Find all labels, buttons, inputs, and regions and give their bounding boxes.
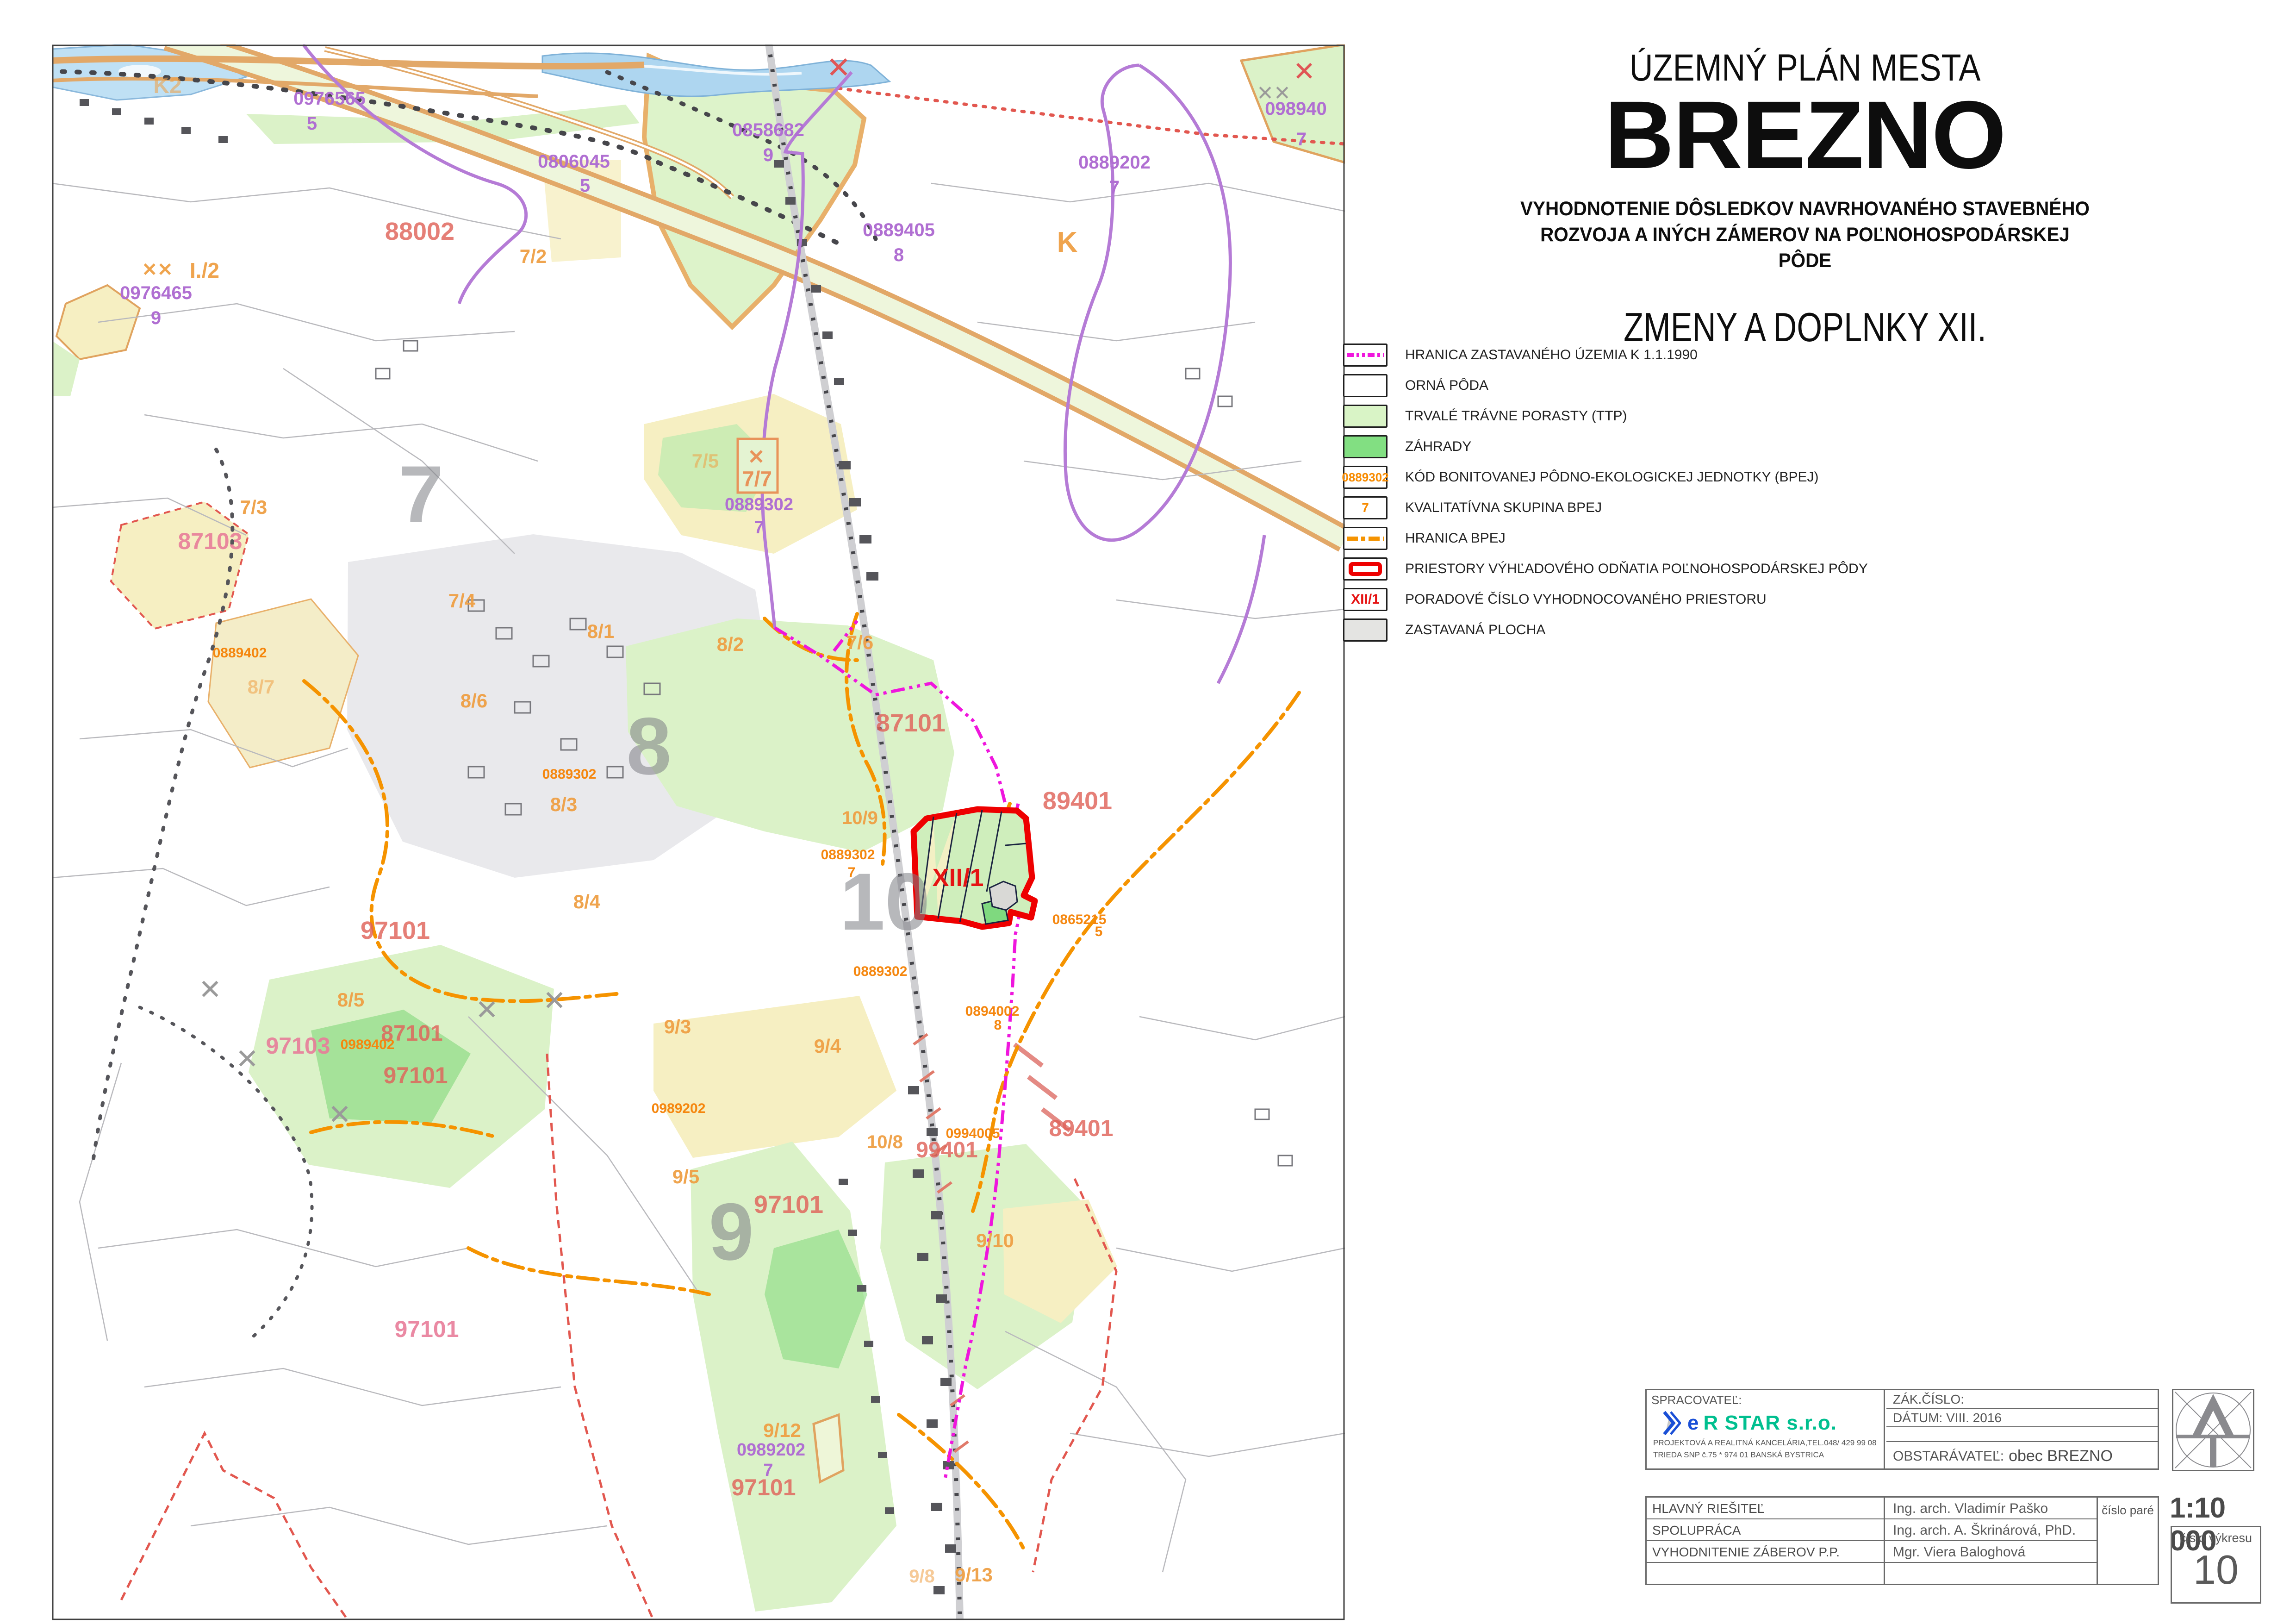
map-label-7: 7: [1109, 177, 1120, 198]
date-value: VIII. 2016: [1946, 1411, 2002, 1425]
map-label-97101: 97101: [731, 1474, 796, 1500]
legend-item-bpej-boundary: HRANICA BPEJ: [1343, 527, 1829, 550]
map-label-✕: ✕: [826, 51, 851, 84]
map-label-8/7: 8/7: [248, 676, 274, 698]
map-label-7: 7: [754, 518, 764, 537]
map-label-8: 8: [894, 245, 904, 265]
map-label-0976565: 0976565: [293, 88, 366, 109]
map-label-7/5: 7/5: [692, 450, 719, 472]
plan-subtitle: VYHODNOTENIE DÔSLEDKOV NAVRHOVANÉHO STAV…: [1513, 196, 2097, 274]
legend-label: PRIESTORY VÝHĽADOVÉHO ODŇATIA POĽNOHOSPO…: [1405, 561, 1868, 577]
map-label-97101: 97101: [383, 1062, 448, 1088]
legend-swatch-bpej-group: 7: [1343, 496, 1388, 519]
map-label-9: 9: [709, 1187, 753, 1277]
stamp-row-4: [1647, 1563, 2097, 1585]
map-label-7/7: 7/7: [742, 467, 772, 491]
map-label-✕: ✕: [748, 446, 765, 468]
order-number-sample: XII/1: [1351, 592, 1380, 607]
map-label-10/8: 10/8: [867, 1132, 903, 1152]
date-row: DÁTUM: VIII. 2016: [1886, 1409, 2159, 1427]
company-logo: e R STAR s.r.o.: [1662, 1411, 1879, 1435]
legend-item-grassland: TRVALÉ TRÁVNE PORASTY (TTP): [1343, 405, 1829, 428]
legend-label: PORADOVÉ ČÍSLO VYHODNOCOVANÉHO PRIESTORU: [1405, 592, 1767, 607]
map-label-7/2: 7/2: [520, 245, 547, 267]
legend-label: ZÁHRADY: [1405, 439, 1471, 455]
map-label-8/5: 8/5: [337, 989, 364, 1011]
map-label-7: 7: [1296, 129, 1307, 150]
map-label-9: 9: [763, 145, 773, 165]
drawing-number-box: číslo výkresu 10: [2171, 1526, 2261, 1604]
map-label-5: 5: [1095, 924, 1103, 939]
logo-company-name: R STAR s.r.o.: [1703, 1412, 1836, 1435]
map-label-8: 8: [994, 1018, 1002, 1033]
legend-item-arable: ORNÁ PÔDA: [1343, 374, 1829, 397]
copy-number-cell: číslo paré: [2097, 1498, 2158, 1584]
stamp-row-3: VYHODNITENIE ZÁBEROV P.P. Mgr. Viera Bal…: [1647, 1541, 2097, 1563]
map-label-97101: 97101: [361, 917, 430, 944]
orange-dashdot-line: [1347, 537, 1384, 541]
red-outline-sample: [1349, 562, 1382, 576]
map-label-9/4: 9/4: [814, 1035, 841, 1057]
map-label-I./2: I./2: [190, 258, 219, 282]
map-label-9: 9: [151, 308, 161, 328]
author-label: SPRACOVATEĽ:: [1651, 1393, 1879, 1407]
drawing-number-label: číslo výkresu: [2172, 1531, 2260, 1545]
map-label-7/6: 7/6: [846, 631, 873, 653]
legend-label: HRANICA BPEJ: [1405, 531, 1506, 546]
legend-item-bpej-group: 7 KVALITATÍVNA SKUPINA BPEJ: [1343, 496, 1829, 519]
map-label-0889302: 0889302: [821, 847, 875, 862]
map-label-0889302: 0889302: [853, 964, 908, 979]
map-label-89401: 89401: [1049, 1115, 1113, 1141]
map-label-✕: ✕: [199, 974, 222, 1005]
map-label-0989402: 0989402: [341, 1037, 395, 1052]
map-label-✕: ✕: [236, 1043, 259, 1074]
map-label-89401: 89401: [1043, 787, 1112, 815]
person-name: Mgr. Viera Baloghová: [1886, 1541, 2097, 1562]
map-label-5: 5: [307, 113, 317, 134]
map-label-97101: 97101: [394, 1316, 459, 1342]
map-canvas: K209765655080604550858682908892027088940…: [52, 44, 1345, 1620]
map-label-✕: ✕: [1293, 56, 1316, 87]
address-line2: TRIEDA SNP č.75 * 974 01 BANSKÁ BYSTRICA: [1653, 1449, 1879, 1461]
map-label-87103: 87103: [178, 528, 242, 554]
map-label-9/5: 9/5: [672, 1166, 699, 1187]
map-label-0976465: 0976465: [120, 283, 192, 303]
legend-label: TRVALÉ TRÁVNE PORASTY (TTP): [1405, 408, 1627, 424]
legend: HRANICA ZASTAVANÉHO ÚZEMIA K 1.1.1990 OR…: [1343, 344, 1829, 649]
map-label-0989202: 0989202: [652, 1101, 706, 1116]
map-label-88002: 88002: [385, 218, 454, 245]
map-label-0994005: 0994005: [946, 1126, 1000, 1141]
legend-item-order-number: XII/1 PORADOVÉ ČÍSLO VYHODNOCOVANÉHO PRI…: [1343, 588, 1829, 611]
map-label-7/3: 7/3: [240, 496, 267, 518]
legend-item-gardens: ZÁHRADY: [1343, 435, 1829, 458]
role-label: [1647, 1563, 1885, 1584]
person-name: [1886, 1563, 2097, 1584]
map-label-9/13: 9/13: [955, 1564, 993, 1586]
legend-item-bpej-code: 0889302 KÓD BONITOVANEJ PÔDNO-EKOLOGICKE…: [1343, 466, 1829, 489]
legend-swatch-gardens: [1343, 435, 1388, 458]
legend-swatch-built-up: [1343, 618, 1388, 642]
stamp-author-cell: SPRACOVATEĽ: e R STAR s.r.o. PROJEKTOVÁ …: [1647, 1390, 1885, 1468]
role-label: HLAVNÝ RIEŠITEĽ: [1647, 1498, 1885, 1518]
stamp-row-2: SPOLUPRÁCA Ing. arch. A. Škrinárová, PhD…: [1647, 1519, 2097, 1541]
legend-swatch-boundary-1990: [1343, 344, 1388, 367]
stamp-upper-table: SPRACOVATEĽ: e R STAR s.r.o. PROJEKTOVÁ …: [1645, 1389, 2159, 1470]
map-label-8/3: 8/3: [550, 793, 577, 815]
empty-row: [1886, 1427, 2159, 1442]
map-label-0889302: 0889302: [725, 495, 793, 514]
map-label-0858682: 0858682: [732, 120, 804, 140]
client-row: OBSTARÁVATEĽ:obec BREZNO: [1886, 1442, 2159, 1468]
order-number-label: ZÁK.ČÍSLO:: [1893, 1392, 1964, 1406]
plan-subtitle-line2: ROZVOJA A INÝCH ZÁMEROV NA POĽNOHOSPODÁR…: [1513, 222, 2097, 274]
stamp-order-cell: ZÁK.ČÍSLO: DÁTUM: VIII. 2016 OBSTARÁVATE…: [1886, 1390, 2159, 1468]
stamp-row-1: HLAVNÝ RIEŠITEĽ Ing. arch. Vladimír Pašk…: [1647, 1498, 2097, 1519]
address-line1: PROJEKTOVÁ A REALITNÁ KANCELÁRIA,TEL.048…: [1653, 1437, 1879, 1449]
map-label-8/1: 8/1: [587, 620, 614, 642]
map-label-✕: ✕: [328, 1099, 351, 1130]
map-label-8/4: 8/4: [573, 891, 601, 912]
map-label-7: 7: [848, 865, 856, 880]
map-label-7/4: 7/4: [448, 590, 476, 612]
legend-label: KVALITATÍVNA SKUPINA BPEJ: [1405, 500, 1602, 516]
plan-subtitle-line1: VYHODNOTENIE DÔSLEDKOV NAVRHOVANÉHO STAV…: [1513, 196, 2097, 222]
map-label-✕✕: ✕✕: [1257, 82, 1291, 105]
magenta-dash-line: [1347, 353, 1384, 357]
map-label-10/9: 10/9: [842, 808, 878, 828]
map-label-9/10: 9/10: [976, 1230, 1014, 1251]
date-label: DÁTUM:: [1893, 1411, 1942, 1425]
map-label-9/8: 9/8: [909, 1566, 935, 1587]
client-value: obec BREZNO: [2009, 1447, 2113, 1465]
bpej-group-sample: 7: [1362, 500, 1369, 515]
legend-label: ORNÁ PÔDA: [1405, 378, 1488, 394]
architect-mark: [2172, 1389, 2254, 1471]
map-label-XII/1: XII/1: [932, 864, 983, 892]
legend-item-withdrawal: PRIESTORY VÝHĽADOVÉHO ODŇATIA POĽNOHOSPO…: [1343, 557, 1829, 581]
role-label: VYHODNITENIE ZÁBEROV P.P.: [1647, 1541, 1885, 1562]
map-label-9/3: 9/3: [664, 1016, 691, 1037]
legend-label: ZASTAVANÁ PLOCHA: [1405, 622, 1545, 638]
map-label-99401: 99401: [916, 1138, 977, 1162]
map-label-9/12: 9/12: [763, 1419, 801, 1441]
title-block: ÚZEMNÝ PLÁN MESTA BREZNO VYHODNOTENIE DÔ…: [1495, 46, 2115, 351]
map-label-0894002: 0894002: [965, 1004, 1020, 1019]
map-label-7: 7: [398, 450, 443, 540]
role-label: SPOLUPRÁCA: [1647, 1519, 1885, 1540]
map-label-8/2: 8/2: [717, 633, 744, 655]
drawing-number-value: 10: [2172, 1546, 2260, 1593]
map: K209765655080604550858682908892027088940…: [52, 44, 1345, 1620]
bpej-code-sample: 0889302: [1342, 470, 1388, 485]
legend-item-boundary-1990: HRANICA ZASTAVANÉHO ÚZEMIA K 1.1.1990: [1343, 344, 1829, 367]
map-label-K2: K2: [153, 74, 181, 98]
map-label-✕✕: ✕✕: [142, 260, 173, 280]
plan-sheet: K209765655080604550858682908892027088940…: [0, 0, 2296, 1624]
map-label-✕: ✕: [543, 985, 566, 1016]
order-number-row: ZÁK.ČÍSLO:: [1886, 1390, 2159, 1409]
legend-label: KÓD BONITOVANEJ PÔDNO-EKOLOGICKEJ JEDNOT…: [1405, 469, 1819, 485]
legend-swatch-arable: [1343, 374, 1388, 397]
legend-swatch-bpej-code: 0889302: [1343, 466, 1388, 489]
map-label-0889405: 0889405: [863, 220, 935, 240]
map-label-✕: ✕: [475, 994, 498, 1025]
chevron-logo-icon: [1662, 1411, 1681, 1435]
legend-swatch-bpej-boundary: [1343, 527, 1388, 550]
map-label-8: 8: [626, 701, 671, 792]
architect-mark-icon: [2173, 1390, 2253, 1470]
stamp-lower-table: HLAVNÝ RIEŠITEĽ Ing. arch. Vladimír Pašk…: [1645, 1496, 2159, 1585]
map-label-0989202: 0989202: [737, 1440, 805, 1460]
map-label-87101: 87101: [876, 709, 946, 737]
person-name: Ing. arch. Vladimír Paško: [1886, 1498, 2097, 1518]
legend-label: HRANICA ZASTAVANÉHO ÚZEMIA K 1.1.1990: [1405, 347, 1698, 363]
map-label-8/6: 8/6: [460, 690, 487, 712]
map-label-97103: 97103: [266, 1033, 330, 1059]
copy-number-label: číslo paré: [2102, 1503, 2154, 1518]
plan-supertitle: ÚZEMNÝ PLÁN MESTA: [1538, 46, 2072, 90]
legend-item-built-up: ZASTAVANÁ PLOCHA: [1343, 618, 1829, 642]
map-label-5: 5: [580, 175, 590, 196]
company-address: PROJEKTOVÁ A REALITNÁ KANCELÁRIA,TEL.048…: [1653, 1437, 1879, 1461]
logo-letter-e: e: [1687, 1412, 1699, 1435]
map-label-0806045: 0806045: [538, 151, 610, 172]
legend-swatch-order-number: XII/1: [1343, 588, 1388, 611]
person-name: Ing. arch. A. Škrinárová, PhD.: [1886, 1519, 2097, 1540]
legend-swatch-grassland: [1343, 405, 1388, 428]
map-label-97101: 97101: [754, 1191, 823, 1218]
map-label-0889302: 0889302: [542, 767, 597, 782]
map-label-K: K: [1057, 226, 1078, 258]
map-label-0889202: 0889202: [1078, 152, 1151, 173]
client-label: OBSTARÁVATEĽ:: [1893, 1449, 2004, 1464]
legend-swatch-withdrawal: [1343, 557, 1388, 581]
map-label-0889402: 0889402: [213, 645, 267, 661]
plan-city-title: BREZNO: [1495, 86, 2115, 184]
